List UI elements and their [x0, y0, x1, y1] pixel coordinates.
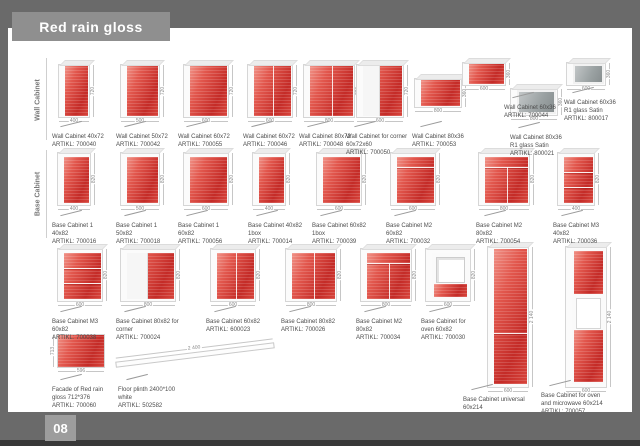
cabinet-drawing: 820400 — [57, 152, 91, 206]
height-dimension-value: 820 — [337, 270, 343, 280]
product-label: Base Cabinet 60x82 1boxARTIKL: 700039 — [312, 215, 370, 246]
width-dimension: 800 — [121, 301, 175, 310]
height-dimension-value: 720 — [90, 86, 96, 96]
height-dimension-value: 720 — [229, 86, 235, 96]
width-dimension-value: 2 400 — [187, 344, 202, 352]
product-name: Base Cabinet for oven and microwave 60x2… — [541, 393, 603, 409]
product-name: Base Cabinet 1 40x82 — [52, 223, 110, 239]
product-label: Wall Cabinet 50x72ARTIKL: 700042 — [116, 126, 174, 150]
product-name: Wall Cabinet 40x72 — [52, 134, 110, 142]
height-dimension: 820 — [435, 153, 444, 205]
product-artikl: ARTIKL: 700030 — [421, 335, 477, 343]
height-dimension-value: 820 — [412, 270, 418, 280]
cabinet-drawing: 820400 — [252, 152, 286, 206]
product-label: Wall Cabinet 60x36ARTIKL: 700044 — [504, 97, 556, 121]
door-divider — [273, 66, 274, 116]
product-artikl: ARTIKL: 800021 — [510, 151, 566, 159]
door-divider — [389, 263, 390, 299]
product-name: Floor plinth 2400*100 white — [118, 387, 188, 403]
cabinet-front — [572, 249, 605, 384]
height-dimension-value: 820 — [595, 174, 601, 184]
product-name: Wall Cabinet 60x72 — [178, 134, 236, 142]
cabinet-front — [432, 253, 469, 299]
height-dimension: 820 — [255, 249, 264, 301]
product-label: Base Cabinet 60x82ARTIKL: 600023 — [206, 311, 264, 335]
height-dimension-value: 820 — [471, 270, 477, 280]
product-label: Base Cabinet 1 40x82ARTIKL: 700016 — [52, 215, 110, 246]
height-dimension: 820 — [285, 153, 294, 205]
product-artikl: ARTIKL: 700024 — [116, 335, 186, 343]
height-dimension: 720 — [159, 65, 168, 117]
upper-door — [574, 251, 603, 294]
height-dimension: 820 — [159, 153, 168, 205]
product-name: Wall Cabinet 60x36 — [504, 105, 556, 113]
product-label: Base Cabinet M3 40x82ARTIKL: 700036 — [553, 215, 611, 246]
cabinet-front — [127, 157, 158, 203]
lower-door — [574, 330, 603, 382]
product-name: Wall Cabinet 60x72 — [243, 134, 301, 142]
height-dimension: 720 — [292, 65, 301, 117]
product-name: Base Cabinet 1 50x82 — [116, 223, 174, 239]
cabinet-drawing: 360800 — [414, 78, 462, 108]
cabinet-front — [573, 64, 604, 84]
product-name: Base Cabinet 40x82 1box — [248, 223, 306, 239]
product-label: Base Cabinet M3 60x82ARTIKL: 700038 — [52, 311, 110, 342]
cabinet-front — [310, 66, 353, 116]
cabinet-drawing: 820600 — [316, 152, 362, 206]
cabinet-drawing: 720500 — [120, 64, 160, 118]
cabinet-drawing: 360600 — [462, 62, 506, 86]
width-dimension-value: 600 — [479, 86, 489, 92]
product-name: Base Cabinet for oven 60x82 — [421, 319, 477, 335]
product-name: Base Cabinet 60x82 1box — [312, 223, 370, 239]
appliance-niche — [576, 298, 601, 330]
section-divider-base — [46, 150, 47, 238]
cabinet-drawing: 820500 — [120, 152, 160, 206]
product-artikl: ARTIKL: 700044 — [504, 113, 556, 121]
product-label: Base Cabinet 80x82 for cornerARTIKL: 700… — [116, 311, 186, 342]
product-label: Wall Cabinet 60x72ARTIKL: 700055 — [178, 126, 236, 150]
product-artikl: ARTIKL: 800017 — [564, 116, 616, 124]
product-name: Wall Cabinet 60x36 R1 glass Satin — [564, 100, 616, 116]
height-dimension: 820 — [336, 249, 345, 301]
cabinet-drawing: 820400 — [557, 152, 595, 206]
height-dimension-value: 720 — [293, 86, 299, 96]
height-dimension-value: 360 — [606, 69, 612, 79]
height-dimension: 820 — [361, 153, 370, 205]
cabinet-drawing: 820800 — [478, 152, 530, 206]
height-dimension: 360 — [605, 63, 614, 85]
product-name: Wall Cabinet 80x36 R1 glass Satin — [510, 135, 566, 151]
cabinet-front — [65, 66, 88, 116]
product-name: Base Cabinet M2 60x82 — [386, 223, 444, 239]
cabinet-front — [397, 157, 434, 203]
cabinet-drawing: 720600 — [356, 64, 404, 118]
height-dimension-value: 820 — [176, 270, 182, 280]
drawer-line — [397, 167, 434, 168]
height-dimension-value: 2 140 — [607, 310, 613, 325]
cabinet-front — [217, 253, 254, 299]
product-name: Facade of Red rain gloss 712*376 — [52, 387, 108, 403]
height-dimension-value: 820 — [256, 270, 262, 280]
drawer-line — [564, 172, 593, 173]
height-dimension-value: 820 — [286, 174, 292, 184]
height-dimension: 2 140 — [606, 247, 615, 387]
height-dimension: 820 — [470, 249, 479, 301]
cabinet-front — [254, 66, 291, 116]
cabinet-front — [292, 253, 335, 299]
cabinet-drawing: 720400 — [58, 64, 90, 118]
product-label: Wall Cabinet 80x36ARTIKL: 700053 — [412, 126, 470, 150]
door-divider — [236, 253, 237, 299]
corner-panel — [363, 66, 380, 116]
product-artikl: ARTIKL: 502582 — [118, 403, 188, 411]
width-dimension: 800 — [415, 107, 461, 116]
corner-panel — [127, 253, 148, 299]
product-label: Facade of Red rain gloss 712*376ARTIKL: … — [52, 379, 108, 410]
cabinet-drawing: 720600 — [247, 64, 293, 118]
product-name: Wall Cabinet 80x36 — [412, 134, 470, 142]
product-artikl: ARTIKL: 600023 — [206, 327, 264, 335]
product-name: Base Cabinet M2 80x82 — [356, 319, 414, 335]
cabinet-front — [323, 157, 360, 203]
height-dimension: 820 — [411, 249, 420, 301]
product-name: Base Cabinet M3 60x82 — [52, 319, 110, 335]
product-artikl: ARTIKL: 700055 — [178, 142, 236, 150]
product-label: Base Cabinet M2 80x82ARTIKL: 700054 — [476, 215, 534, 246]
product-label: Floor plinth 2400*100 whiteARTIKL: 50258… — [118, 379, 188, 410]
height-dimension-value: 820 — [229, 174, 235, 184]
product-label: Base Cabinet 1 50x82ARTIKL: 700018 — [116, 215, 174, 246]
product-name: Base Cabinet 80x82 — [281, 319, 339, 327]
product-label: Wall Cabinet 40x72ARTIKL: 700040 — [52, 126, 110, 150]
cabinet-front — [494, 249, 527, 384]
frame-bottom-strip — [0, 440, 640, 446]
cabinet-drawing: 820600 — [210, 248, 256, 302]
product-label: Wall Cabinet 80x36 R1 glass SatinARTIKL:… — [510, 127, 566, 158]
drawer-line — [64, 268, 101, 269]
cabinet-drawing: 720800 — [303, 64, 355, 118]
product-artikl: ARTIKL: 700042 — [116, 142, 174, 150]
title-banner: Red rain gloss — [12, 12, 170, 41]
height-dimension: 2 140 — [528, 247, 537, 387]
product-artikl: ARTIKL: 700014 — [248, 239, 306, 247]
cabinet-drawing: 820600 — [183, 152, 229, 206]
product-artikl: ARTIKL: 700050 — [346, 150, 418, 158]
cabinet-drawing: 820800 — [360, 248, 412, 302]
cabinet-front — [259, 157, 284, 203]
cabinet-drawing: 820600 — [425, 248, 471, 302]
product-name: Base Cabinet 80x82 for corner — [116, 319, 186, 335]
cabinet-front — [64, 253, 101, 299]
cabinet-front — [190, 157, 227, 203]
product-label: Base Cabinet M2 60x82ARTIKL: 700032 — [386, 215, 444, 246]
height-dimension: 720 — [228, 65, 237, 117]
section-label-wall-cabinet: Wall Cabinet — [35, 79, 42, 121]
product-artikl: ARTIKL: 700018 — [116, 239, 174, 247]
height-dimension: 820 — [228, 153, 237, 205]
cabinet-drawing: 820600 — [390, 152, 436, 206]
cabinet-front — [367, 253, 410, 299]
height-dimension-value: 720 — [404, 86, 410, 96]
height-dimension: 820 — [90, 153, 99, 205]
cabinet-front — [190, 66, 227, 116]
product-artikl: ARTIKL: 700040 — [52, 142, 110, 150]
product-artikl: ARTIKL: 700046 — [243, 142, 301, 150]
width-dimension: 600 — [463, 85, 505, 94]
product-artikl: ARTIKL: 700054 — [476, 239, 534, 247]
door-divider — [332, 66, 333, 116]
cabinet-front — [469, 64, 504, 84]
product-label: Wall Cabinet 60x72ARTIKL: 700046 — [243, 126, 301, 150]
section-label-base-cabinet: Base Cabinet — [35, 172, 42, 216]
cabinet-drawing: 820600 — [57, 248, 103, 302]
height-dimension-value: 820 — [530, 174, 536, 184]
drawer-line — [64, 283, 101, 284]
cabinet-drawing: 2 400 — [115, 342, 275, 367]
product-label: Wall Cabinet 60x36 R1 glass SatinARTIKL:… — [564, 92, 616, 123]
product-name: Base Cabinet 1 60x82 — [178, 223, 236, 239]
height-dimension-value: 820 — [103, 270, 109, 280]
cabinet-front — [421, 80, 460, 106]
product-artikl: ARTIKL: 700060 — [52, 403, 108, 411]
catalog-page: Red rain gloss 08 Wall Cabinet Base Cabi… — [0, 0, 640, 446]
cabinet-front — [127, 253, 174, 299]
height-dimension: 720 — [403, 65, 412, 117]
cabinet-drawing: 720600 — [183, 64, 229, 118]
product-label: Wall Cabinet for corner 60x72x60ARTIKL: … — [346, 126, 418, 157]
height-dimension: 820 — [175, 249, 184, 301]
cabinet-front — [564, 157, 593, 203]
product-label: Base Cabinet 40x82 1boxARTIKL: 700014 — [248, 215, 306, 246]
product-label: Base Cabinet for oven 60x82ARTIKL: 70003… — [421, 311, 477, 342]
product-artikl: ARTIKL: 700053 — [412, 142, 470, 150]
width-dimension-value: 800 — [433, 108, 443, 114]
height-dimension-value: 2 140 — [529, 310, 535, 325]
product-artikl: ARTIKL: 700056 — [178, 239, 236, 247]
section-divider-wall — [46, 58, 47, 140]
oven-niche — [436, 257, 465, 283]
drawer-front — [434, 284, 467, 297]
product-name: Base Cabinet 60x82 — [206, 319, 264, 327]
door-divider — [314, 253, 315, 299]
height-dimension: 720 — [89, 65, 98, 117]
drawer-line — [494, 333, 527, 334]
product-name: Wall Cabinet for corner 60x72x60 — [346, 134, 418, 150]
cabinet-drawing: 360600 — [566, 62, 606, 86]
cabinet-front — [127, 66, 158, 116]
page-number: 08 — [45, 415, 76, 441]
height-dimension: 820 — [102, 249, 111, 301]
product-artikl: ARTIKL: 700034 — [356, 335, 414, 343]
height-dimension-value: 713 — [50, 346, 56, 356]
height-dimension: 360 — [505, 63, 514, 85]
height-dimension: 820 — [594, 153, 603, 205]
product-label: Base Cabinet M2 80x82ARTIKL: 700034 — [356, 311, 414, 342]
product-artikl: ARTIKL: 700026 — [281, 327, 339, 335]
height-dimension-value: 820 — [362, 174, 368, 184]
frame-right — [632, 0, 640, 446]
height-dimension-value: 820 — [436, 174, 442, 184]
cabinet-drawing: 2 140600 — [487, 246, 529, 388]
cabinet-drawing: 820800 — [120, 248, 176, 302]
product-label: Base Cabinet 1 60x82ARTIKL: 700056 — [178, 215, 236, 246]
product-name: Wall Cabinet 50x72 — [116, 134, 174, 142]
product-name: Base Cabinet universal 60x214 — [463, 397, 527, 413]
cabinet-front — [485, 157, 528, 203]
product-name: Base Cabinet M3 40x82 — [553, 223, 611, 239]
product-artikl: ARTIKL: 700032 — [386, 239, 444, 247]
cabinet-drawing: 820800 — [285, 248, 337, 302]
frame-left — [0, 0, 8, 446]
height-dimension-value: 820 — [91, 174, 97, 184]
product-label: Base Cabinet 80x82ARTIKL: 700026 — [281, 311, 339, 335]
height-dimension-value: 360 — [506, 69, 512, 79]
height-dimension-value: 820 — [160, 174, 166, 184]
cabinet-front — [64, 157, 89, 203]
door-divider — [507, 167, 508, 203]
drawer-line — [564, 187, 593, 188]
product-artikl: ARTIKL: 700036 — [553, 239, 611, 247]
page-title: Red rain gloss — [39, 19, 142, 35]
cabinet-drawing: 2 140600 — [565, 246, 607, 388]
product-artikl: ARTIKL: 700038 — [52, 335, 110, 343]
cabinet-front — [363, 66, 402, 116]
height-dimension: 820 — [529, 153, 538, 205]
product-name: Base Cabinet M2 80x82 — [476, 223, 534, 239]
product-artikl: ARTIKL: 700016 — [52, 239, 110, 247]
product-artikl: ARTIKL: 700039 — [312, 239, 370, 247]
height-dimension-value: 720 — [160, 86, 166, 96]
